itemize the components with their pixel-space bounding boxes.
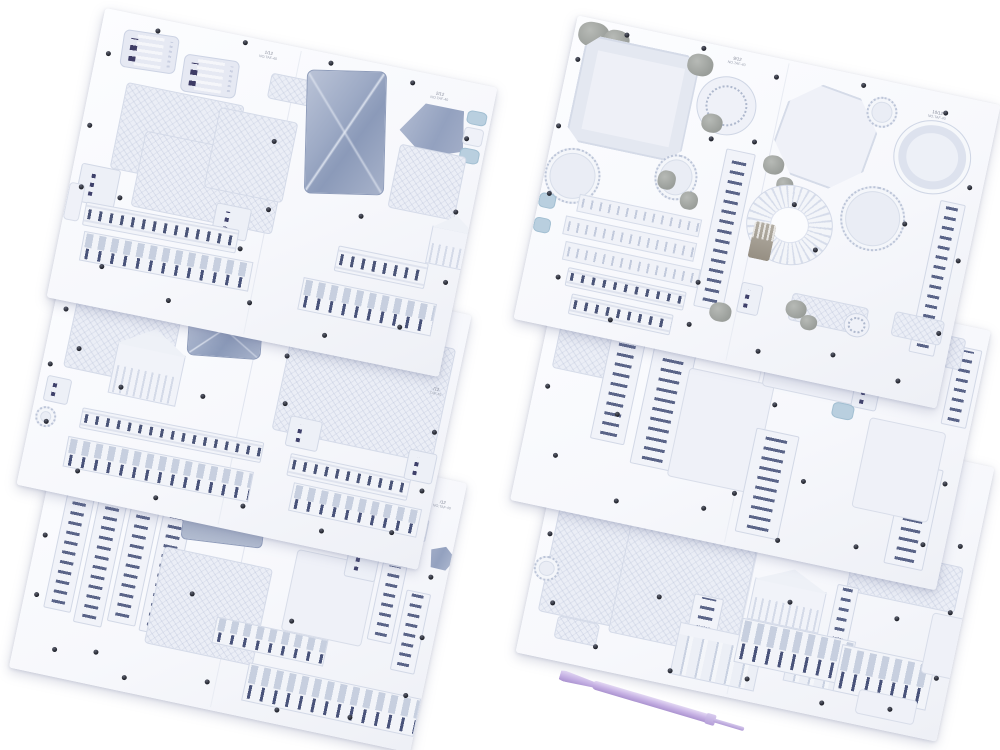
screw-dot (895, 378, 901, 384)
screw-dot (593, 643, 599, 649)
screw-dot (63, 306, 69, 312)
screw-dot (614, 411, 620, 417)
screw-dot (43, 531, 49, 537)
screw-dot (556, 123, 562, 129)
screw-dot (555, 274, 561, 280)
screw-dot (547, 531, 553, 537)
screw-dot (893, 616, 899, 622)
screw-dot (99, 263, 105, 269)
screw-dot (574, 57, 580, 63)
screw-dot (52, 646, 58, 652)
screw-dot (941, 480, 947, 486)
screw-dot (105, 50, 111, 56)
screw-dot (75, 468, 81, 474)
screw-dot (34, 591, 40, 597)
piece-slotblock (43, 374, 72, 405)
screw-dot (933, 676, 939, 682)
sheet-number-label: /12NO.TAF-40 (433, 499, 452, 511)
screw-dot (410, 79, 416, 85)
screw-dot (200, 394, 206, 400)
piece-temple (107, 341, 186, 406)
screw-dot (271, 138, 277, 144)
screw-dot (755, 349, 761, 355)
screw-dot (800, 477, 806, 483)
piece-temple (425, 225, 476, 271)
screw-dot (708, 136, 714, 142)
screw-dot (957, 543, 963, 549)
screw-dot (87, 122, 93, 128)
screw-dot (419, 488, 425, 494)
piece-connector (179, 52, 240, 98)
sheet-number-label: 9/12NO.TAF-40 (727, 55, 746, 67)
piece-slotblock (285, 415, 324, 452)
screw-dot (544, 382, 550, 388)
screw-dot (428, 574, 434, 580)
screw-dot (397, 323, 403, 329)
piece-teeth (241, 662, 421, 736)
screw-dot (239, 503, 245, 509)
screw-dot (443, 279, 449, 285)
piece-brick (204, 106, 299, 203)
piece-clover (708, 301, 733, 324)
piece-gable (430, 545, 455, 571)
screw-dot (117, 194, 123, 200)
piece-colonnade (334, 245, 429, 289)
piece-ring (886, 113, 978, 202)
screw-dot (273, 707, 279, 713)
piece-connector (119, 28, 180, 74)
screw-dot (947, 610, 953, 616)
screw-dot (93, 649, 99, 655)
screw-dot (613, 497, 619, 503)
screw-dot (853, 543, 859, 549)
screw-dot (266, 206, 272, 212)
screw-dot (967, 185, 973, 191)
screw-dot (902, 221, 908, 227)
screw-dot (242, 39, 248, 45)
screw-dot (165, 297, 171, 303)
piece-gear (834, 181, 911, 258)
screw-dot (772, 401, 778, 407)
screw-dot (818, 700, 824, 706)
screw-dot (247, 299, 253, 305)
piece-panel (920, 612, 966, 679)
kit-photo: /12NO.TAF-40/12TAF-401/12NO.TAF-402/12NO… (0, 0, 1000, 750)
screw-dot (389, 529, 395, 535)
screw-dot (358, 213, 364, 219)
screw-dot (956, 258, 962, 264)
piece-slotblock (403, 449, 438, 485)
piece-clover (678, 190, 699, 212)
screw-dot (731, 490, 737, 496)
screw-dot (237, 246, 243, 252)
piece-roof (304, 69, 387, 195)
screw-dot (328, 60, 334, 66)
sheet-number-label: 2/12NO.TAF-40 (430, 90, 449, 102)
screw-dot (153, 495, 159, 501)
screw-dot (830, 352, 836, 358)
screw-dot (701, 505, 707, 511)
piece-tab (466, 109, 489, 127)
piece-slotblock (736, 282, 764, 317)
screw-dot (47, 361, 53, 367)
screw-dot (121, 674, 127, 680)
screw-dot (419, 634, 425, 640)
screw-dot (774, 537, 780, 543)
sheet-number-label: 1/12NO.TAF-40 (259, 50, 278, 62)
screw-dot (204, 678, 210, 684)
screw-dot (751, 139, 757, 145)
piece-bevelsq (565, 33, 702, 163)
piece-gear (33, 404, 57, 429)
screw-dot (920, 541, 926, 547)
screw-dot (464, 135, 470, 141)
screw-dot (686, 321, 692, 327)
screw-dot (322, 332, 328, 338)
screw-dot (155, 27, 161, 33)
screw-dot (78, 183, 84, 189)
screw-dot (552, 452, 558, 458)
piece-tab (532, 216, 552, 235)
screw-dot (453, 208, 459, 214)
screw-dot (318, 528, 324, 534)
screw-dot (860, 83, 866, 89)
screw-dot (700, 46, 706, 52)
screw-dot (774, 74, 780, 80)
pry-tool-tip (713, 718, 745, 731)
piece-dotcircle (691, 71, 762, 141)
